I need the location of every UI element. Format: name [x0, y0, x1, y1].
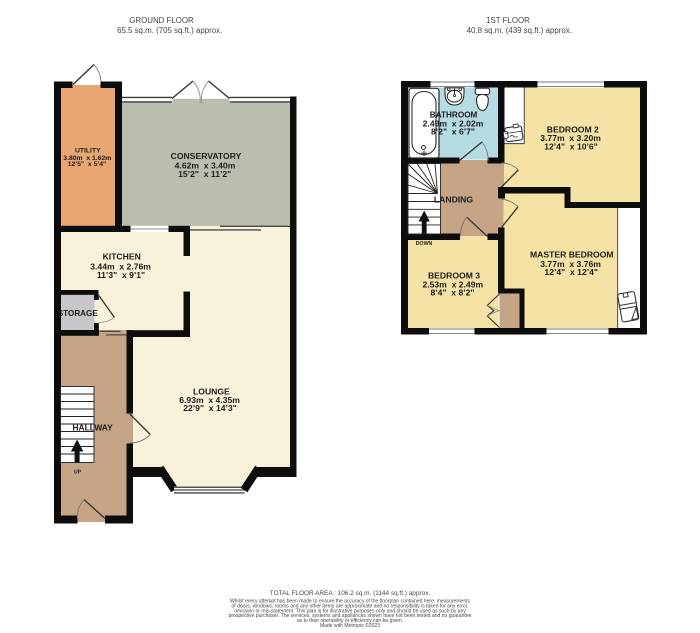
svg-text:UTILITY: UTILITY — [75, 148, 101, 155]
svg-text:1ST FLOOR: 1ST FLOOR — [486, 16, 530, 25]
svg-text:CONSERVATORY: CONSERVATORY — [171, 151, 242, 161]
svg-text:UP: UP — [74, 469, 82, 475]
svg-text:DOWN: DOWN — [416, 241, 433, 247]
svg-text:12’4" x 10’6": 12’4" x 10’6" — [544, 141, 598, 151]
svg-text:12’4" x 12’4": 12’4" x 12’4" — [544, 267, 598, 277]
svg-text:LANDING: LANDING — [434, 194, 473, 204]
svg-text:65.5 sq.m. (705 sq.ft.) approx: 65.5 sq.m. (705 sq.ft.) approx. — [117, 26, 222, 35]
svg-text:8’2" x 6’7": 8’2" x 6’7" — [431, 127, 475, 137]
svg-text:40.8 sq.m. (439 sq.ft.) approx: 40.8 sq.m. (439 sq.ft.) approx. — [467, 26, 572, 35]
svg-text:22’9" x 14’3": 22’9" x 14’3" — [183, 403, 237, 413]
svg-text:12’5" x 5’4": 12’5" x 5’4" — [68, 161, 107, 168]
svg-text:11’3" x 9’1": 11’3" x 9’1" — [97, 270, 145, 280]
svg-text:8’4" x 8’2": 8’4" x 8’2" — [431, 288, 475, 298]
svg-text:Made with Metropix ©2023: Made with Metropix ©2023 — [320, 622, 380, 629]
svg-text:KITCHEN: KITCHEN — [103, 252, 141, 262]
svg-text:15’2" x 11’2": 15’2" x 11’2" — [178, 169, 231, 179]
svg-text:HALLWAY: HALLWAY — [73, 423, 114, 433]
svg-text:GROUND FLOOR: GROUND FLOOR — [129, 16, 194, 25]
svg-text:TOTAL FLOOR AREA : 106.2 sq.m.: TOTAL FLOOR AREA : 106.2 sq.m. (1144 sq.… — [270, 590, 431, 597]
svg-text:STORAGE: STORAGE — [58, 309, 98, 318]
